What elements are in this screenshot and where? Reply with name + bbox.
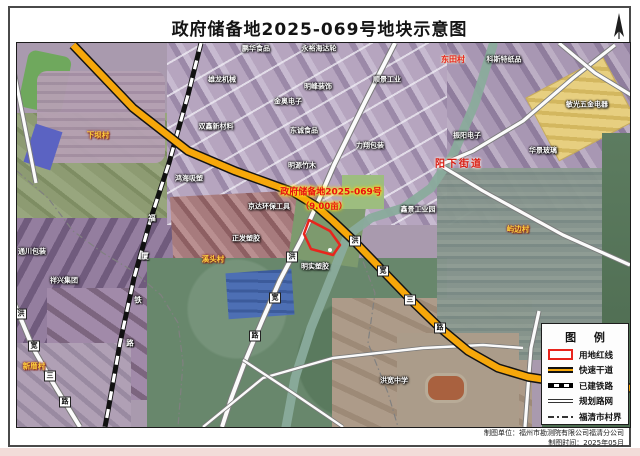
map-label-district-big: 阳下街道 — [435, 160, 483, 170]
map-label-railchar: 福 — [148, 214, 156, 222]
railway-symbol-icon — [548, 383, 573, 388]
credit-date: 制图时间：2025年05月 — [484, 438, 624, 448]
map-label-district: 东田村 — [441, 56, 465, 64]
map-label-factory: 正发塑胶 — [232, 236, 260, 243]
planned-symbol-icon — [548, 399, 573, 403]
north-arrow-icon — [611, 12, 627, 40]
map-label-factory: 双鑫新材料 — [199, 124, 234, 131]
legend-rows: 用地红线快速干道已建铁路规划路网福清市村界 — [542, 349, 628, 423]
map-label-plot1: 政府储备地2025-069号 — [280, 189, 382, 198]
river-path — [286, 45, 493, 427]
map-label-factory: 敏光五金电器 — [566, 102, 608, 109]
map-sheet: 政府储备地2025-069号地块示意图 — [8, 6, 631, 447]
map-label-roadbox: 路 — [249, 331, 261, 342]
map-label-village: 新厝村 — [23, 362, 46, 370]
legend-item-label: 快速干道 — [579, 364, 613, 376]
roads-overlay — [17, 43, 630, 427]
legend-item-label: 福清市村界 — [579, 411, 622, 423]
map-label-roadbox: 洪 — [349, 236, 361, 247]
map-label-factory: 东诚食品 — [290, 128, 318, 135]
map-label-factory: 明实塑胶 — [301, 264, 329, 271]
map-label-roadbox: 洪 — [16, 309, 27, 320]
map-label-factory: 金奥电子 — [274, 99, 302, 106]
map-label-village: 屿边村 — [507, 225, 530, 233]
map-label-factory: 力翔包装 — [356, 143, 384, 150]
map-canvas: 图 例 用地红线快速干道已建铁路规划路网福清市村界 鹏华食品永裕海达轮雄龙机械明… — [16, 42, 631, 428]
map-credits: 制图单位：福州市勘测院有限公司福清分公司 制图时间：2025年05月 — [484, 428, 624, 448]
map-label-factory: 顺景工业 — [373, 77, 401, 84]
map-label-factory: 通川包装 — [18, 249, 46, 256]
legend-item-planned: 规划路网 — [548, 395, 622, 407]
expressway-symbol-icon — [548, 367, 573, 373]
map-label-factory: 雄龙机械 — [208, 77, 236, 84]
legend-box: 图 例 用地红线快速干道已建铁路规划路网福清市村界 — [541, 323, 629, 425]
map-label-factory: 科斯特纸品 — [487, 57, 522, 64]
map-label-village: 下坝村 — [87, 131, 110, 139]
map-label-roadbox: 三 — [404, 295, 416, 306]
map-label-roadbox: 宽 — [28, 341, 40, 352]
map-label-roadbox: 三 — [44, 371, 56, 382]
map-label-roadbox: 宽 — [269, 293, 281, 304]
map-label-plot2: （9.00亩） — [301, 203, 347, 212]
map-label-village: 溪头村 — [202, 255, 225, 263]
legend-item-label: 已建铁路 — [579, 380, 613, 392]
map-label-factory: 鑫景工业园 — [401, 207, 436, 214]
credit-agency: 制图单位：福州市勘测院有限公司福清分公司 — [484, 428, 624, 438]
legend-item-label: 规划路网 — [579, 395, 613, 407]
plot-marker-dot — [328, 248, 332, 252]
page-title: 政府储备地2025-069号地块示意图 — [10, 15, 629, 40]
map-label-factory: 鹏华食品 — [242, 46, 270, 53]
map-label-roadbox: 路 — [59, 397, 71, 408]
boundary-symbol-icon — [548, 416, 573, 418]
map-label-factory: 振阳电子 — [453, 133, 481, 140]
map-label-railchar: 厦 — [141, 252, 149, 260]
map-label-factory: 华景玻璃 — [529, 148, 557, 155]
map-label-roadbox: 洪 — [286, 252, 298, 263]
legend-item-redline: 用地红线 — [548, 349, 622, 361]
map-label-factory: 永裕海达轮 — [302, 46, 337, 53]
map-label-factory: 鸿海吸塑 — [175, 176, 203, 183]
map-label-roadbox: 宽 — [377, 266, 389, 277]
legend-item-expressway: 快速干道 — [548, 364, 622, 376]
map-label-factory: 祥兴集团 — [50, 278, 78, 285]
map-label-railchar: 路 — [126, 339, 134, 347]
legend-item-label: 用地红线 — [579, 349, 613, 361]
map-label-roadbox: 路 — [434, 323, 446, 334]
legend-item-boundary: 福清市村界 — [548, 411, 622, 423]
legend-item-railway: 已建铁路 — [548, 380, 622, 392]
redline-symbol-icon — [548, 349, 573, 360]
map-label-factory: 洪宽中学 — [380, 378, 408, 385]
map-label-factory: 明峰装饰 — [304, 84, 332, 91]
planned-road-paths — [17, 43, 630, 427]
map-label-factory: 京达环保工具 — [248, 204, 290, 211]
page-edge-strip — [0, 448, 640, 456]
legend-title: 图 例 — [549, 329, 628, 345]
map-label-factory: 明源竹木 — [288, 163, 316, 170]
map-label-railchar: 铁 — [134, 296, 142, 304]
